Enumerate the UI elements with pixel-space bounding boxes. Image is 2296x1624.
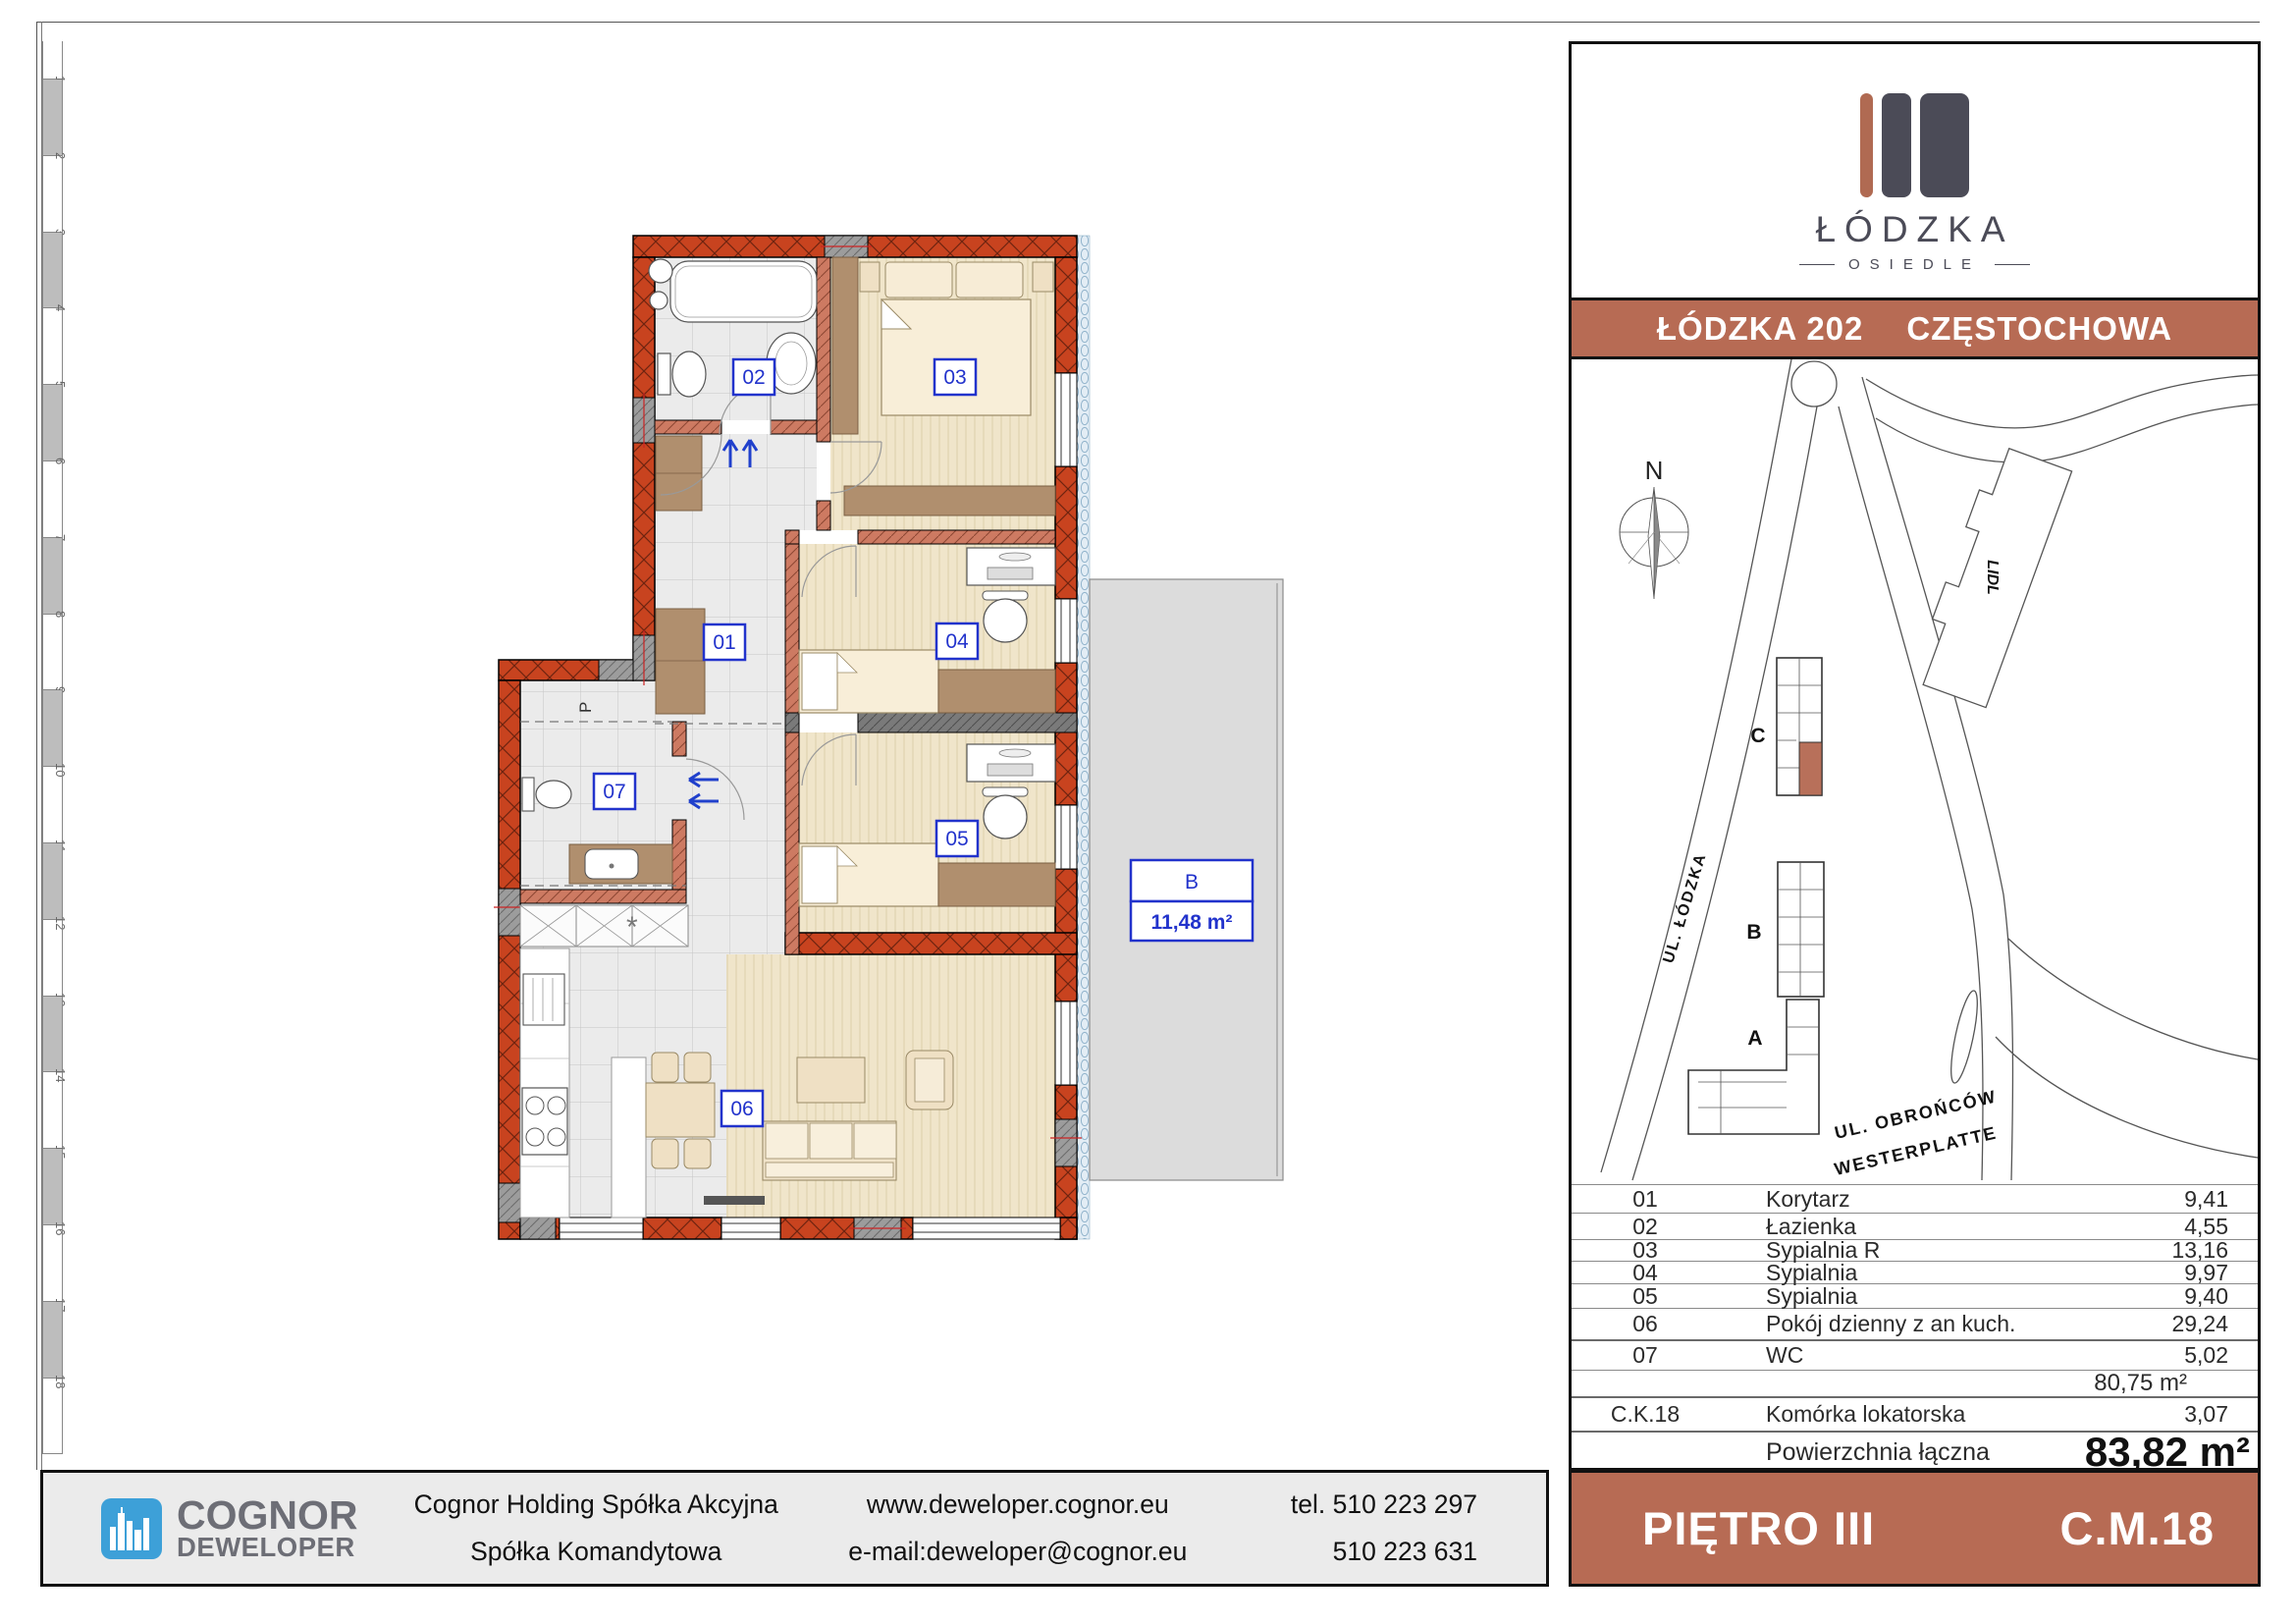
- table-row: 03Sypialnia R13,16: [1572, 1239, 2258, 1261]
- room-name: WC: [1719, 1342, 2022, 1369]
- table-row: 06Pokój dzienny z an kuch.29,24: [1572, 1308, 2258, 1339]
- site-map: N LIDL C B: [1572, 359, 2258, 1184]
- table-row: 04Sypialnia9,97: [1572, 1261, 2258, 1283]
- floor-label: PIĘTRO III: [1642, 1501, 1875, 1555]
- window-living: [1055, 1001, 1077, 1085]
- phone-number-2: 510 223 631: [1241, 1537, 1477, 1567]
- room-no: 02: [1572, 1214, 1719, 1240]
- room-no: C.K.18: [1572, 1401, 1719, 1428]
- highlighted-unit: [1799, 742, 1822, 795]
- ruler-segment: [42, 1302, 63, 1379]
- room-area: 4,55: [2022, 1214, 2258, 1240]
- svg-text:11,48 m²: 11,48 m²: [1151, 911, 1233, 934]
- room-area: 9,41: [2022, 1186, 2258, 1213]
- store-label: LIDL: [1984, 560, 2001, 595]
- cognor-wordmark-sub: DEWELOPER: [177, 1535, 358, 1559]
- table-row: 05Sypialnia9,40: [1572, 1283, 2258, 1308]
- ruler-segment: [42, 690, 63, 767]
- ruler-segment: [42, 41, 63, 80]
- table-row: Powierzchnia łączna83,82 m²: [1572, 1431, 2258, 1472]
- window-bedroom3: [1055, 373, 1077, 466]
- ruler-segment: [42, 1149, 63, 1225]
- ruler-segment: [42, 615, 63, 691]
- logo-bars-icon: [1572, 91, 2258, 197]
- building-b-label: B: [1746, 921, 1761, 944]
- svg-text:05: 05: [945, 828, 968, 850]
- svg-text:01: 01: [713, 631, 735, 654]
- balcony-door-bedroom5: [1055, 805, 1077, 869]
- estate-subtitle: OSIEDLE: [1572, 256, 2258, 273]
- washer-label: P: [576, 702, 595, 713]
- window-bottom-2: [721, 1218, 780, 1239]
- compass: N: [1620, 456, 1688, 599]
- floor-unit-plate: PIĘTRO III C.M.18: [1569, 1470, 2261, 1587]
- building-b: B: [1746, 862, 1824, 997]
- ruler-segment: [42, 233, 63, 309]
- room-name: Sypialnia: [1719, 1260, 2022, 1286]
- ruler-segment: [42, 538, 63, 615]
- vent-symbol: *: [626, 911, 638, 944]
- cognor-logo-icon: [100, 1497, 163, 1560]
- table-row: 07WC5,02: [1572, 1339, 2258, 1370]
- room-label-06: 06: [721, 1091, 763, 1126]
- balcony-label: B 11,48 m²: [1131, 860, 1253, 941]
- floorplan-sheet: 123456789101112131415161718: [0, 0, 2296, 1624]
- north-label: N: [1645, 456, 1664, 485]
- roads: [1601, 359, 2258, 1180]
- table-row: C.K.18Komórka lokatorska3,07: [1572, 1396, 2258, 1431]
- room-label-03: 03: [934, 359, 976, 395]
- email-link: e-mail:deweloper@cognor.eu: [795, 1537, 1241, 1567]
- room-no: 06: [1572, 1311, 1719, 1337]
- building-a: A: [1688, 1000, 1819, 1134]
- ruler-segment: [42, 156, 63, 233]
- sheet-left-border: [36, 22, 37, 1470]
- room-no: 01: [1572, 1186, 1719, 1213]
- website-link: www.deweloper.cognor.eu: [795, 1489, 1241, 1520]
- room-area: 9,97: [2022, 1260, 2258, 1286]
- room-area: 3,07: [2022, 1401, 2258, 1428]
- room-name: Komórka lokatorska: [1719, 1401, 2022, 1428]
- room-name: Pokój dzienny z an kuch.: [1719, 1311, 2022, 1337]
- room-no: 04: [1572, 1260, 1719, 1286]
- phone-number-1: tel. 510 223 297: [1241, 1489, 1477, 1520]
- room-area: 83,82 m²: [2044, 1429, 2258, 1476]
- company-type: Spółka Komandytowa: [398, 1537, 795, 1567]
- sheet-top-border: [36, 22, 2260, 23]
- apartment-floor-plan: *: [432, 206, 1315, 1276]
- info-panel: ŁÓDZKA OSIEDLE ŁÓDZKA 202 CZĘSTOCHOWA: [1569, 41, 2261, 1471]
- ruler-segment: [42, 997, 63, 1073]
- room-name: Korytarz: [1719, 1186, 2022, 1213]
- svg-text:03: 03: [943, 366, 966, 389]
- ruler-segment: [42, 1072, 63, 1149]
- window-bottom-3: [913, 1218, 1060, 1239]
- svg-text:04: 04: [945, 630, 969, 653]
- room-label-02: 02: [733, 359, 774, 395]
- svg-text:B: B: [1185, 871, 1199, 893]
- svg-text:07: 07: [603, 781, 625, 803]
- svg-text:06: 06: [730, 1098, 753, 1120]
- ruler-segment: [42, 80, 63, 156]
- room-label-01: 01: [704, 624, 745, 660]
- developer-footer: COGNOR DEWELOPER Cognor Holding Spółka A…: [40, 1470, 1549, 1587]
- room-no: 05: [1572, 1283, 1719, 1310]
- room-name: Łazienka: [1719, 1214, 2022, 1240]
- svg-text:02: 02: [742, 366, 765, 389]
- room-areas-table: 01Korytarz9,4102Łazienka4,5503Sypialnia …: [1572, 1184, 2258, 1472]
- ruler-segment: [42, 461, 63, 538]
- ruler-segment: [42, 308, 63, 385]
- estate-name: ŁÓDZKA: [1572, 209, 2258, 250]
- table-row: 80,75 m²: [1572, 1370, 2258, 1396]
- ruler-segment: [42, 920, 63, 997]
- estate-logo: ŁÓDZKA OSIEDLE: [1572, 44, 2258, 298]
- print-scale-ruler: 123456789101112131415161718: [42, 22, 86, 1465]
- table-row: 01Korytarz9,41: [1572, 1184, 2258, 1213]
- building-c: C: [1750, 658, 1822, 795]
- building-a-label: A: [1747, 1027, 1762, 1050]
- unit-label: C.M.18: [2060, 1501, 2216, 1555]
- project-title-bar: ŁÓDZKA 202 CZĘSTOCHOWA: [1572, 298, 2258, 359]
- company-name: Cognor Holding Spółka Akcyjna: [398, 1489, 795, 1520]
- room-label-07: 07: [594, 774, 635, 809]
- room-area: 80,75 m²: [1981, 1370, 2258, 1397]
- ruler-segment: [42, 1225, 63, 1302]
- balcony-door-bedroom4: [1055, 599, 1077, 663]
- room-area: 5,02: [2022, 1342, 2258, 1369]
- room-area: 9,40: [2022, 1283, 2258, 1310]
- lidl-building: LIDL: [1910, 444, 2072, 708]
- table-row: 02Łazienka4,55: [1572, 1213, 2258, 1239]
- room-area: 29,24: [2022, 1311, 2258, 1337]
- building-c-label: C: [1750, 725, 1765, 747]
- ruler-segment: [42, 843, 63, 920]
- window-bottom-1: [560, 1218, 643, 1239]
- ruler-segment: [42, 767, 63, 843]
- cognor-wordmark: COGNOR: [177, 1497, 358, 1535]
- room-no: 07: [1572, 1342, 1719, 1369]
- ruler-segment: [42, 1379, 63, 1455]
- room-name: Powierzchnia łączna: [1719, 1438, 2044, 1467]
- cognor-logo: COGNOR DEWELOPER: [100, 1497, 358, 1560]
- room-label-05: 05: [936, 821, 978, 856]
- ruler-segment: [42, 385, 63, 461]
- room-name: Sypialnia: [1719, 1283, 2022, 1310]
- balcony: [1077, 236, 1283, 1239]
- project-city: CZĘSTOCHOWA: [1906, 310, 2172, 348]
- room-label-04: 04: [936, 623, 978, 659]
- project-name: ŁÓDZKA 202: [1657, 310, 1863, 348]
